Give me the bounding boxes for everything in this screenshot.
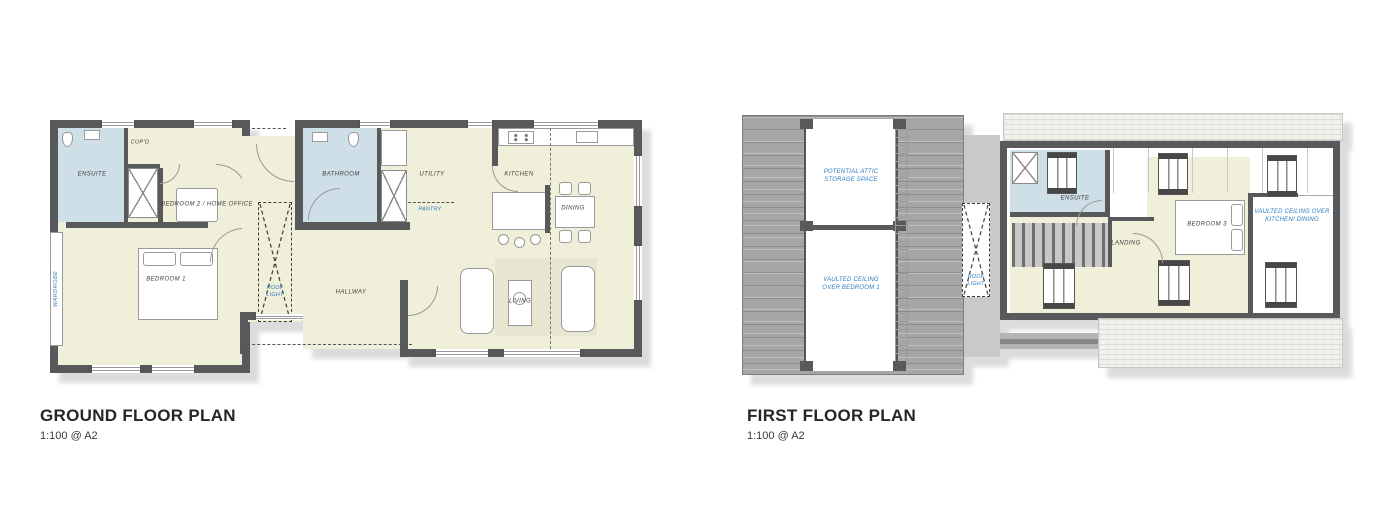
room-label-utility: UTILITY xyxy=(419,171,444,179)
room-label-bedroom1: BEDROOM 1 xyxy=(146,276,186,284)
room-label-wardrobe: WARDROBE xyxy=(50,232,63,346)
label-attic-storage: POTENTIAL ATTIC STORAGE SPACE xyxy=(815,169,887,185)
ground-floor-labels: ENSUITE CUP'D BEDROOM 2 / HOME OFFICE BE… xyxy=(40,108,660,398)
room-label-ensuite: ENSUITE xyxy=(78,171,107,179)
label-vaulted-kitchen: VAULTED CEILING OVER KITCHEN/ DINING xyxy=(1252,209,1332,225)
room-label-kitchen: KITCHEN xyxy=(504,171,533,179)
drawing-sheet: { "document": {"type": "architectural fl… xyxy=(0,0,1396,520)
first-floor-title-block: FIRST FLOOR PLAN 1:100 @ A2 xyxy=(747,406,916,443)
ground-floor-scale: 1:100 @ A2 xyxy=(40,429,236,443)
ground-floor-plan: ENSUITE CUP'D BEDROOM 2 / HOME OFFICE BE… xyxy=(40,108,660,398)
room-label-cupd: CUP'D xyxy=(131,140,150,147)
room-label-bedroom3: BEDROOM 3 xyxy=(1187,221,1227,229)
porch-dashed-line xyxy=(252,128,286,129)
room-label-roof-light: ROOF LIGHT xyxy=(261,285,289,299)
room-label-bedroom2: BEDROOM 2 / HOME OFFICE xyxy=(161,201,253,209)
room-label-hallway: HALLWAY xyxy=(336,289,367,297)
first-floor-plan: POTENTIAL ATTIC STORAGE SPACE VAULTED CE… xyxy=(738,105,1358,395)
label-vaulted-bedroom: VAULTED CEILING OVER BEDROOM 1 xyxy=(818,277,884,293)
room-label-bathroom: BATHROOM xyxy=(322,171,359,179)
first-floor-scale: 1:100 @ A2 xyxy=(747,429,916,443)
ground-floor-title-block: GROUND FLOOR PLAN 1:100 @ A2 xyxy=(40,406,236,443)
first-floor-labels: POTENTIAL ATTIC STORAGE SPACE VAULTED CE… xyxy=(738,105,1358,395)
room-label-dining: DINING xyxy=(561,205,584,213)
label-roof-light: ROOF LIGHT xyxy=(963,274,989,288)
room-label-ensuite2: ENSUITE xyxy=(1061,195,1090,203)
ground-floor-title: GROUND FLOOR PLAN xyxy=(40,406,236,426)
room-label-living: LIVING xyxy=(509,298,531,306)
canopy-dashed-line xyxy=(242,344,412,345)
first-floor-title: FIRST FLOOR PLAN xyxy=(747,406,916,426)
room-label-pantry: PANTRY xyxy=(419,206,442,213)
room-label-landing: LANDING xyxy=(1111,240,1140,248)
